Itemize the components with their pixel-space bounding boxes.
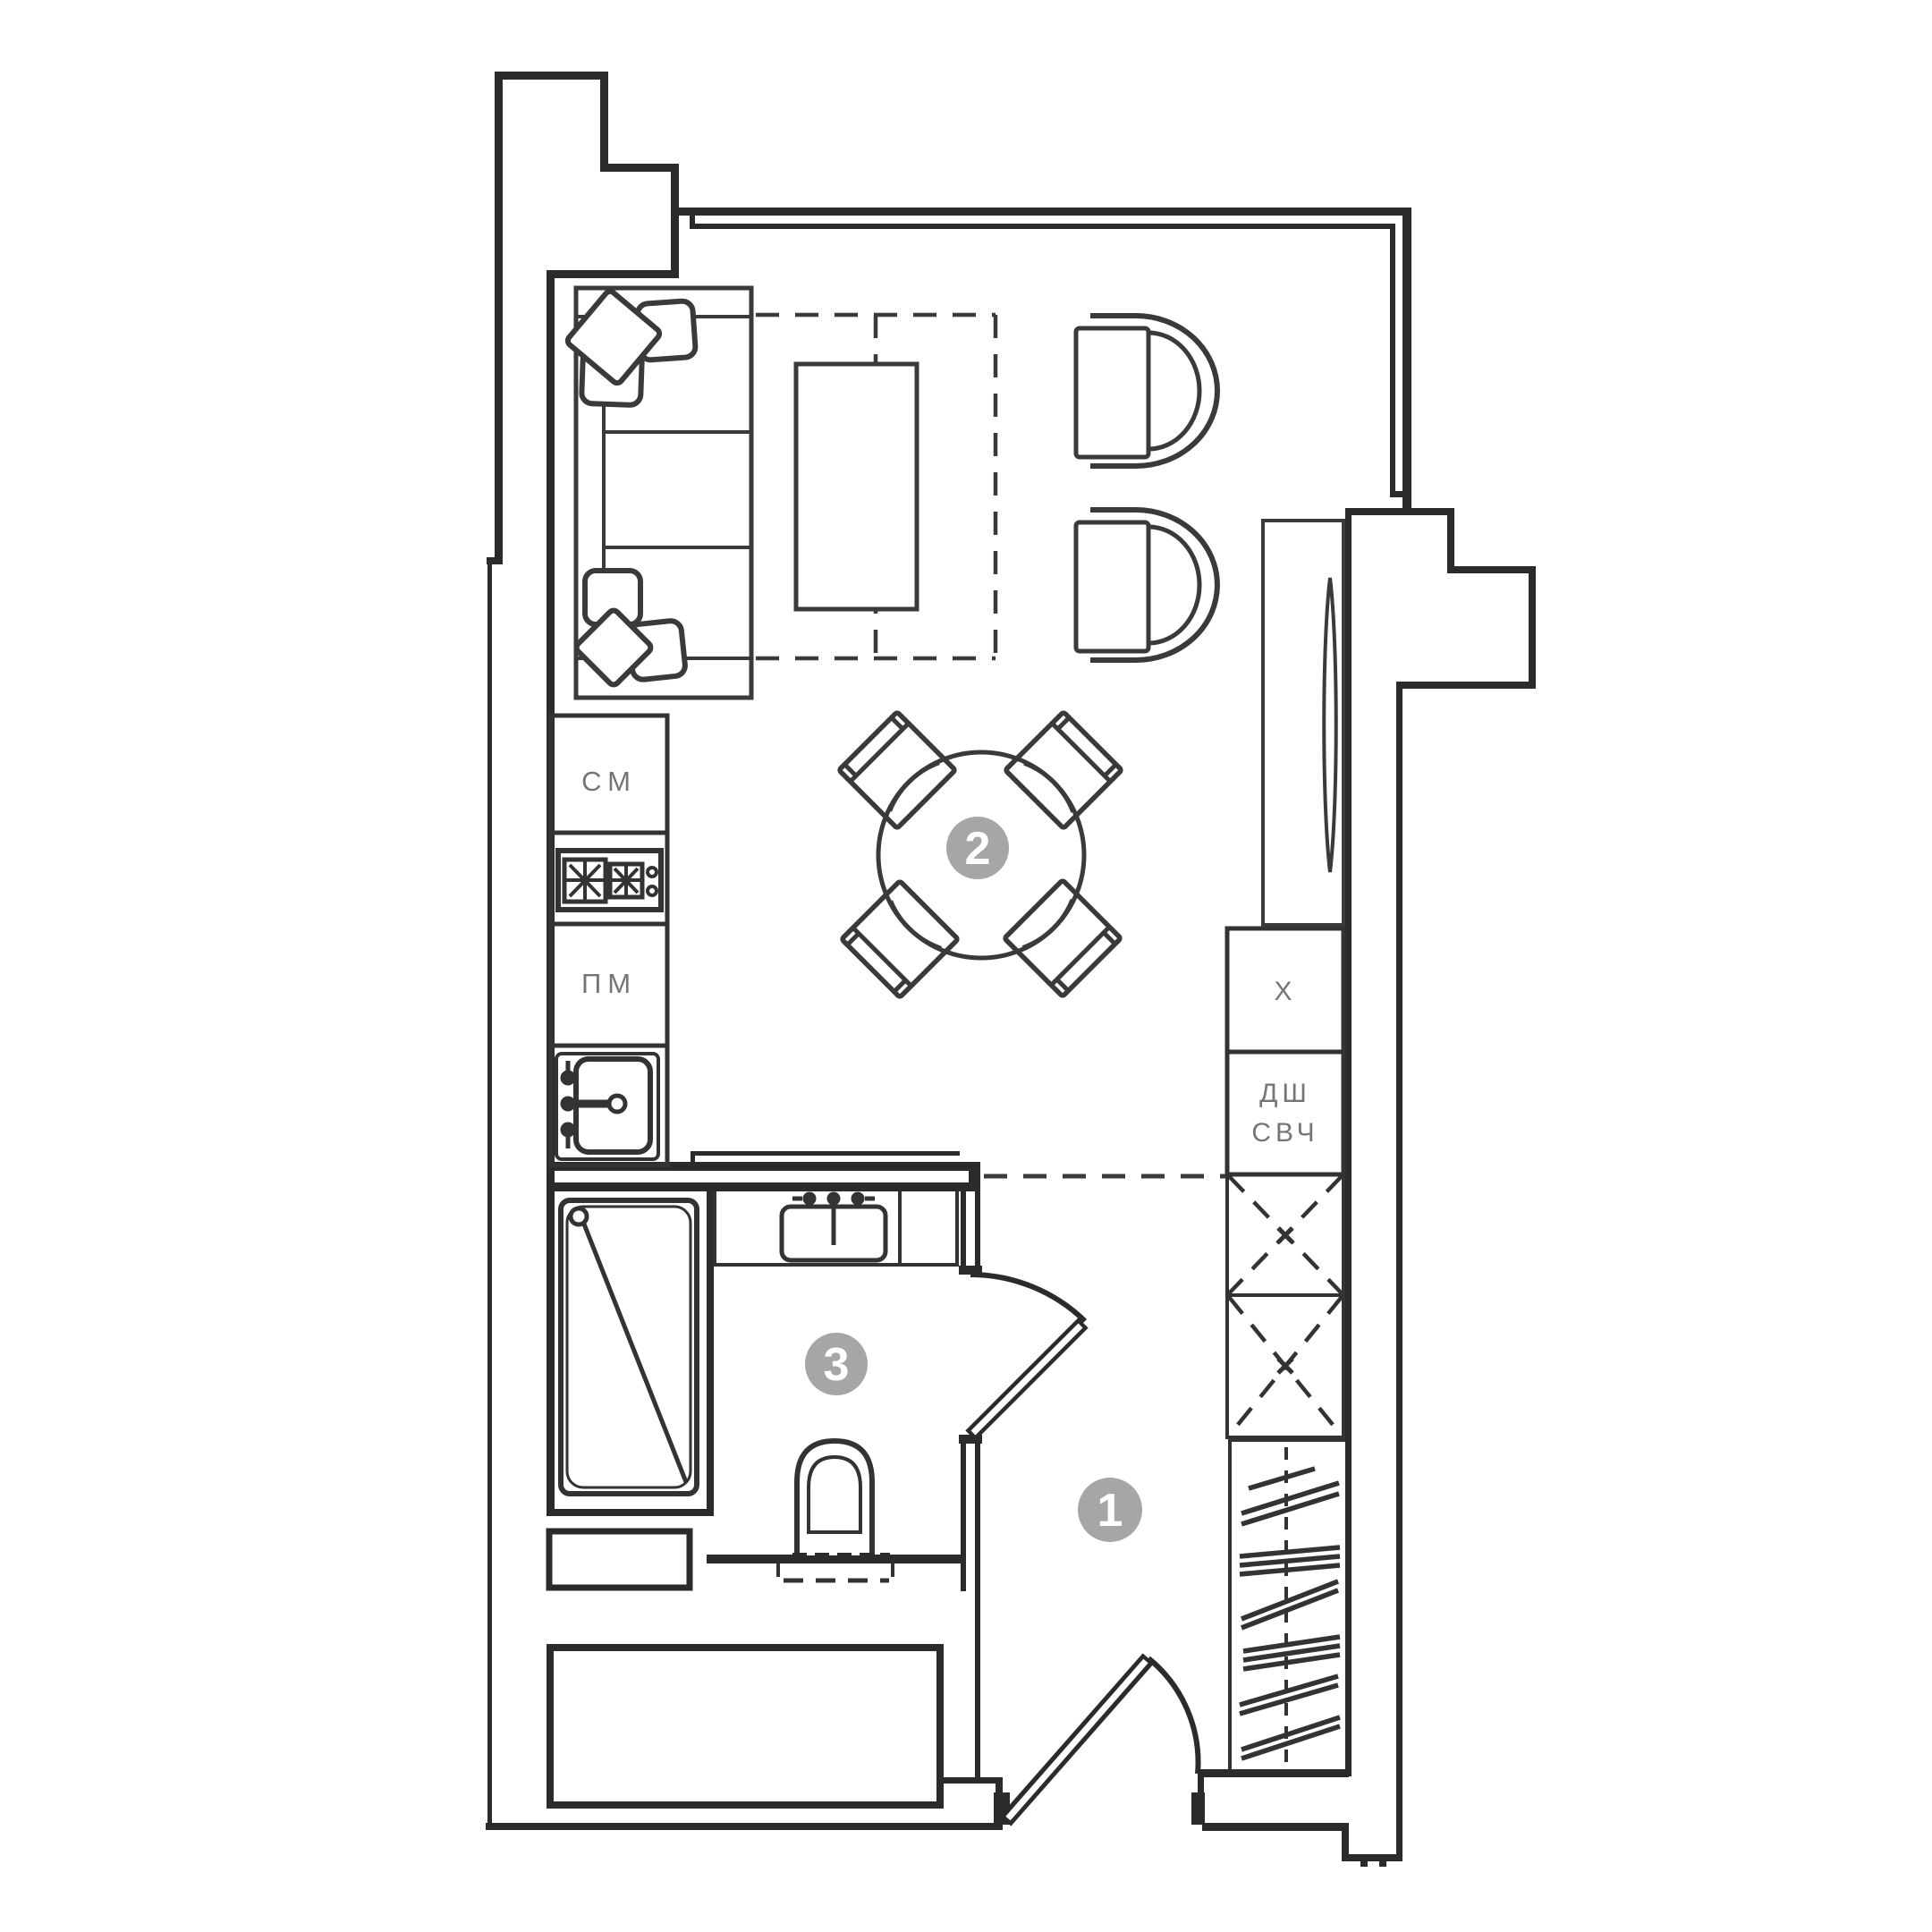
svg-text:СВЧ: СВЧ (1251, 1118, 1318, 1148)
svg-text:СМ: СМ (581, 766, 637, 797)
svg-text:1: 1 (1097, 1485, 1123, 1537)
svg-text:ДШ: ДШ (1259, 1079, 1311, 1108)
svg-text:Х: Х (1274, 977, 1296, 1006)
svg-text:ПМ: ПМ (581, 968, 637, 999)
svg-text:3: 3 (824, 1339, 850, 1391)
svg-text:2: 2 (965, 823, 991, 875)
